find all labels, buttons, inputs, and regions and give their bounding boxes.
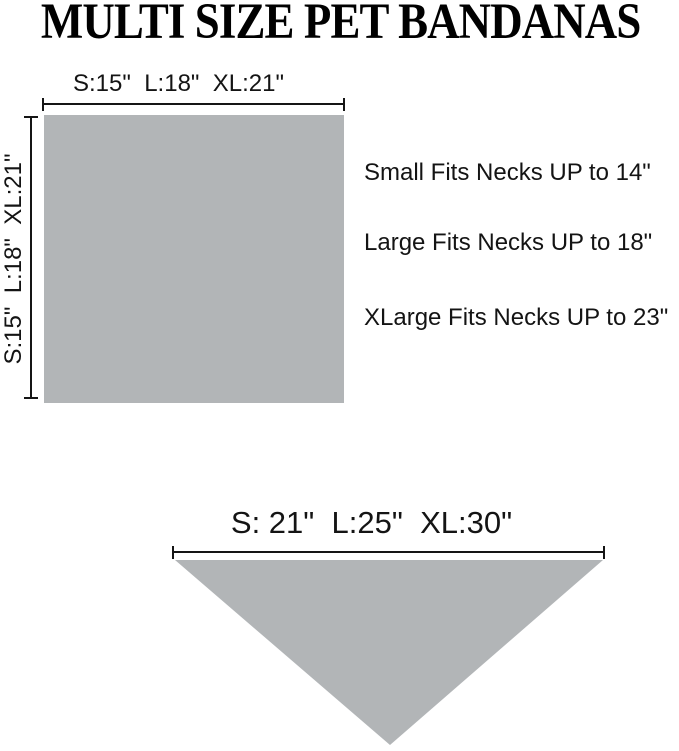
triangle-bandana-fill [175, 560, 603, 745]
fit-note-small: Small Fits Necks UP to 14" [364, 161, 651, 185]
dimension-tick-left [172, 546, 174, 559]
dimension-tick-left [42, 98, 44, 111]
square-height-label: S:15" L:18" XL:21" [2, 115, 28, 403]
dimension-tick-right [603, 546, 605, 559]
square-width-label: S:15" L:18" XL:21" [27, 72, 330, 96]
page-title: MULTI SIZE PET BANDANAS [0, 0, 679, 51]
fit-note-xlarge: XLarge Fits Necks UP to 23" [364, 306, 668, 330]
triangle-width-label: S: 21" L:25" XL:30" [155, 507, 588, 538]
square-bandana-shape [44, 115, 344, 403]
triangle-bandana-shape [175, 560, 603, 746]
dimension-tick-right [343, 98, 345, 111]
square-bandana-fill [44, 115, 344, 403]
square-height-dimension-line [30, 116, 32, 399]
pet-bandana-size-chart: MULTI SIZE PET BANDANAS S:15" L:18" XL:2… [0, 0, 679, 751]
square-width-dimension-line [42, 103, 345, 105]
fit-note-large: Large Fits Necks UP to 18" [364, 231, 652, 255]
page-title-text: MULTI SIZE PET BANDANAS [41, 0, 641, 51]
triangle-width-dimension-line [172, 551, 605, 553]
